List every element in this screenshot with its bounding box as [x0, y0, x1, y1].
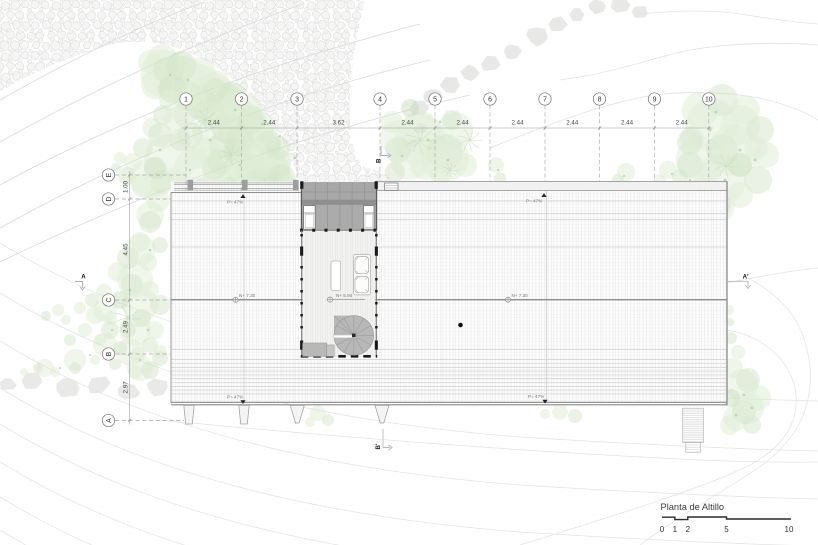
svg-text:2.44: 2.44	[456, 120, 469, 127]
svg-text:2.44: 2.44	[401, 120, 414, 127]
svg-text:1: 1	[184, 97, 188, 104]
svg-text:B: B	[106, 351, 113, 356]
svg-text:0: 0	[660, 525, 665, 534]
svg-text:10: 10	[785, 525, 794, 534]
svg-text:10: 10	[705, 97, 713, 104]
svg-text:E: E	[106, 172, 113, 177]
svg-text:P= 47%: P= 47%	[227, 395, 243, 400]
svg-text:P= 47%: P= 47%	[526, 199, 542, 204]
svg-text:2.44: 2.44	[208, 120, 221, 127]
svg-text:3: 3	[295, 97, 299, 104]
svg-text:Planta de Altillo: Planta de Altillo	[661, 502, 725, 512]
svg-text:N+ 7.30: N+ 7.30	[512, 293, 529, 298]
svg-text:1: 1	[673, 525, 678, 534]
svg-text:B: B	[376, 158, 383, 163]
svg-text:8: 8	[598, 97, 602, 104]
svg-text:2.44: 2.44	[566, 120, 579, 127]
svg-text:B': B'	[375, 443, 382, 449]
svg-text:4.45: 4.45	[122, 243, 129, 256]
svg-text:A: A	[81, 274, 86, 281]
svg-text:A: A	[106, 418, 113, 423]
svg-text:C: C	[106, 297, 113, 302]
svg-text:D: D	[106, 196, 113, 201]
svg-text:2.44: 2.44	[676, 120, 689, 127]
svg-text:A': A'	[743, 274, 749, 281]
svg-text:5: 5	[724, 525, 729, 534]
svg-text:2.44: 2.44	[511, 120, 524, 127]
svg-text:2: 2	[686, 525, 691, 534]
svg-text:2.44: 2.44	[621, 120, 634, 127]
svg-text:P= 47%: P= 47%	[227, 200, 243, 205]
svg-text:5: 5	[433, 97, 437, 104]
svg-text:7: 7	[543, 97, 547, 104]
svg-text:4: 4	[378, 97, 382, 104]
svg-text:2.97: 2.97	[122, 381, 129, 394]
svg-text:2: 2	[240, 97, 244, 104]
svg-text:2.44: 2.44	[263, 120, 276, 127]
svg-text:1.00: 1.00	[122, 180, 129, 193]
svg-text:6: 6	[488, 97, 492, 104]
svg-text:2.49: 2.49	[122, 320, 129, 333]
svg-text:N+ 7.30: N+ 7.30	[239, 293, 256, 298]
svg-text:N+ 5.94: N+ 5.94	[336, 293, 353, 298]
svg-text:9: 9	[653, 97, 657, 104]
svg-text:P= 47%: P= 47%	[528, 394, 544, 399]
svg-text:3.62: 3.62	[332, 120, 345, 127]
